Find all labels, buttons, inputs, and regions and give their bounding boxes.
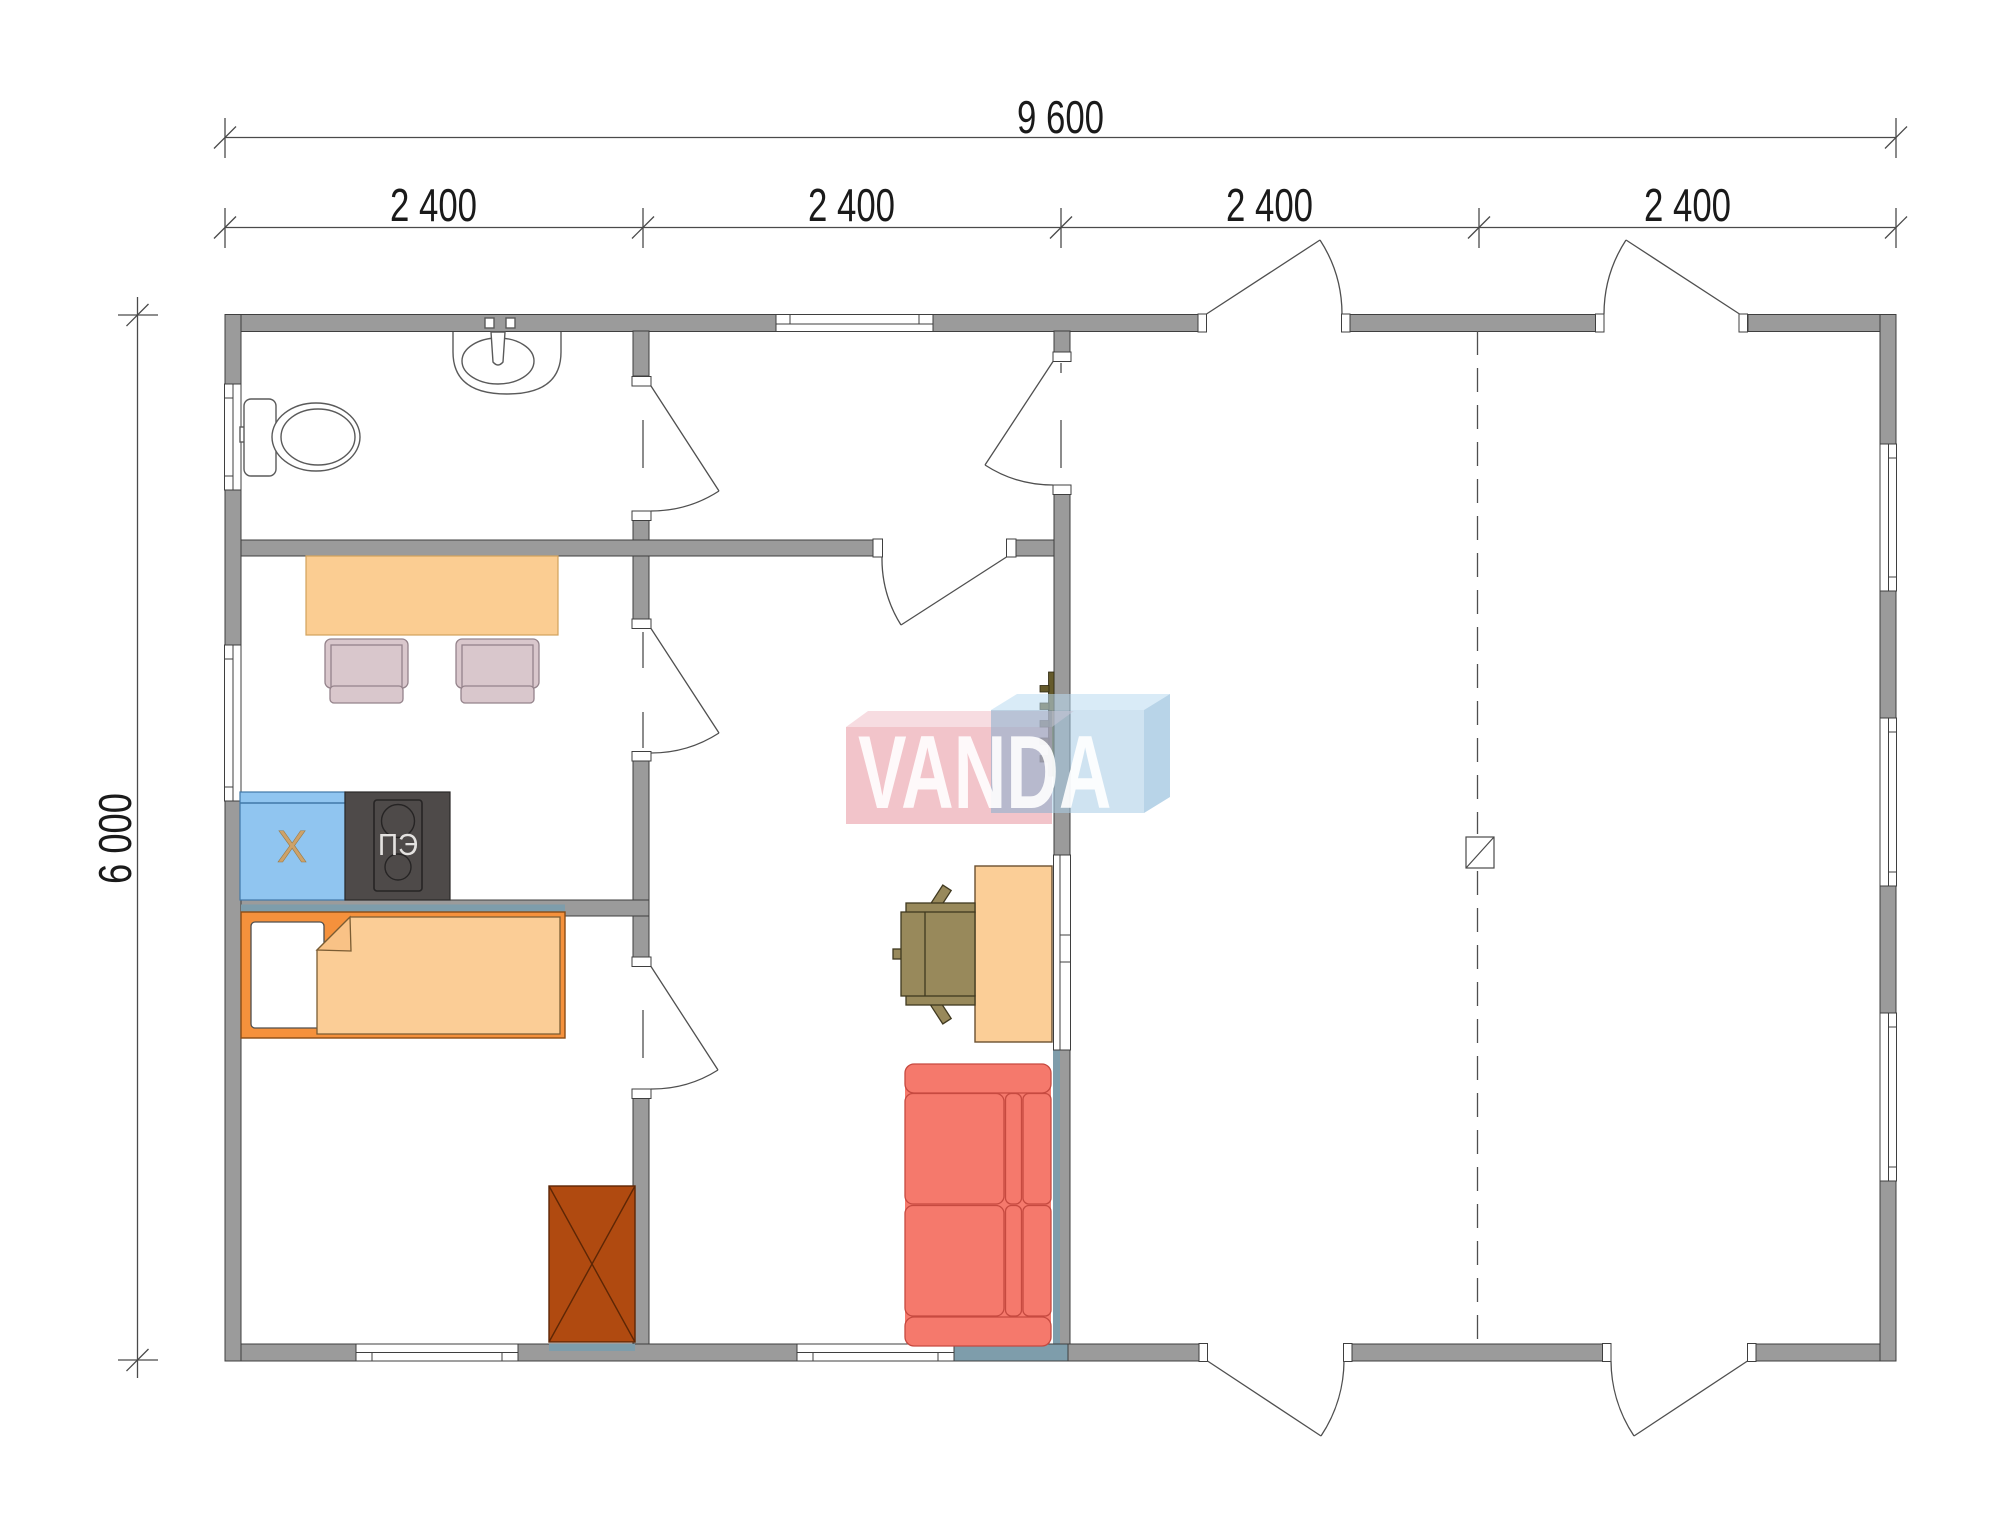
svg-text:ПЭ: ПЭ	[378, 827, 418, 862]
svg-text:6 000: 6 000	[89, 793, 141, 884]
svg-text:X: X	[277, 821, 307, 872]
svg-text:2 400: 2 400	[1644, 179, 1731, 231]
svg-text:2 400: 2 400	[1226, 179, 1313, 231]
svg-text:2 400: 2 400	[808, 179, 895, 231]
svg-text:9 600: 9 600	[1017, 91, 1104, 143]
svg-text:VANDA: VANDA	[858, 715, 1111, 831]
svg-text:2 400: 2 400	[390, 179, 477, 231]
